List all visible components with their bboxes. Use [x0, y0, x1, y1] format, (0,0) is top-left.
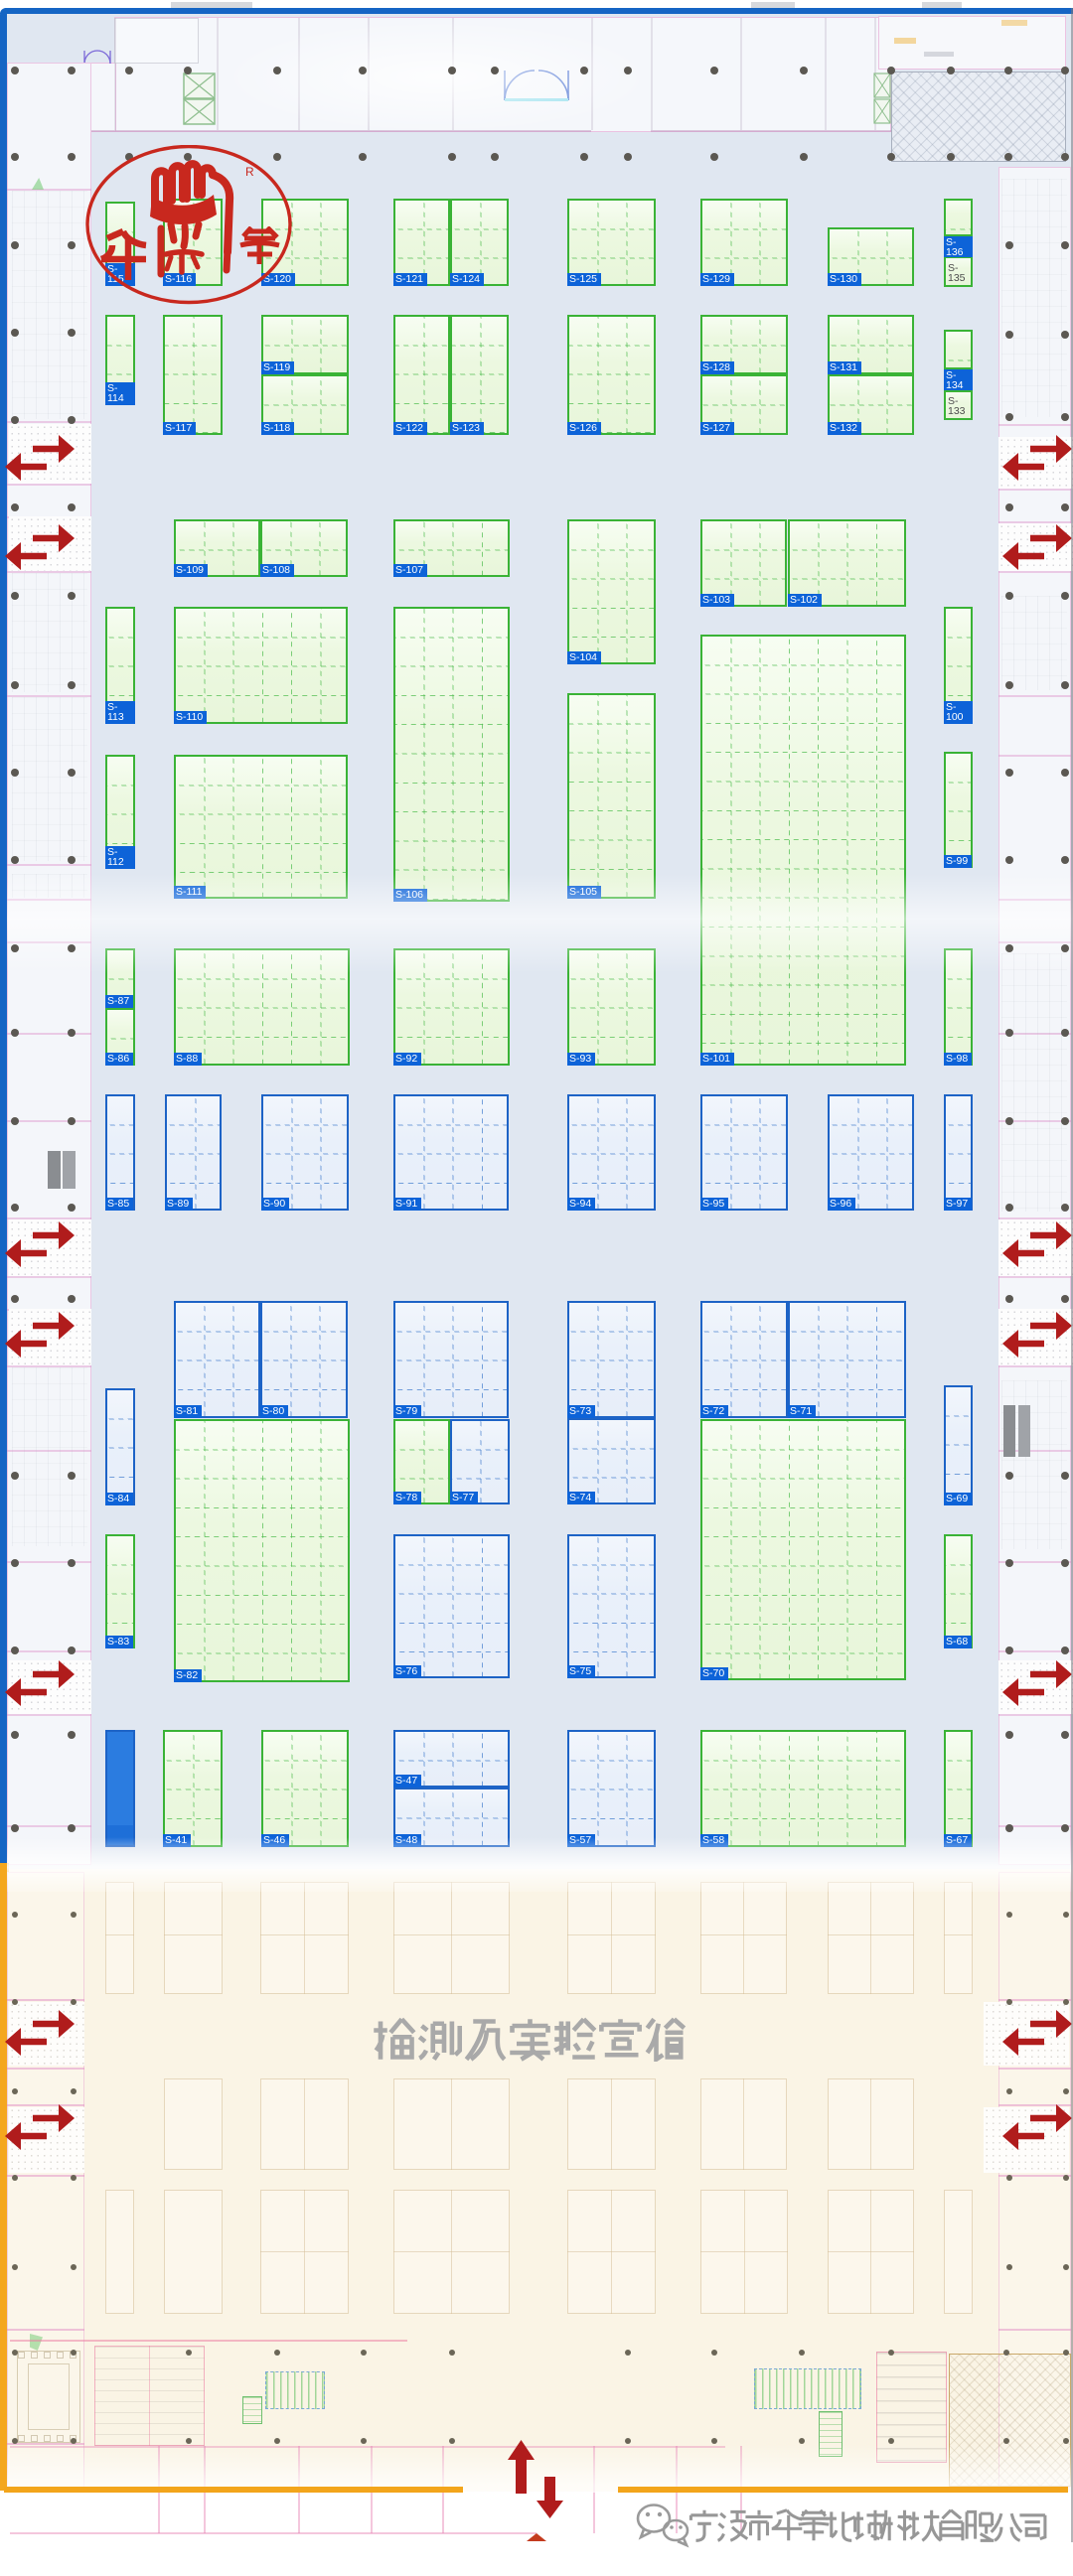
svg-text:R: R [245, 165, 254, 179]
